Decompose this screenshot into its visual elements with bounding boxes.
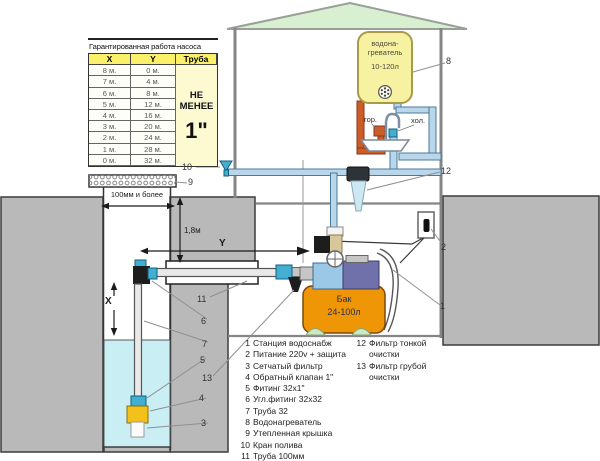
- table-cell: 0 м.: [89, 155, 131, 166]
- tank-label: Бак 24-100л: [303, 293, 385, 319]
- insulated-cover-pattern: [89, 175, 176, 187]
- table-cell: 4 м.: [131, 76, 176, 87]
- pump-motor: [343, 261, 379, 289]
- callout-3: 3: [201, 419, 206, 428]
- legend-item-wrap: очистки: [350, 372, 426, 383]
- pump-inlet: [300, 267, 314, 280]
- water-supply-diagram: Гарантированная работа насоса X Y Труба …: [0, 0, 600, 461]
- legend-item: 5Фитинг 32х1": [234, 383, 346, 394]
- outlet-cable: [400, 238, 424, 263]
- table-cell: 1 м.: [89, 144, 131, 155]
- table-grid: X Y Труба НЕ МЕНЕЕ 1" 8 м. 0 м. 7 м. 4 м…: [88, 53, 218, 167]
- table-cell: 32 м.: [131, 155, 176, 166]
- wall-entry-fitting: [276, 265, 292, 279]
- x-dimension-label: X: [105, 297, 112, 307]
- table-cell: 24 м.: [131, 132, 176, 143]
- house-roof: [227, 3, 467, 29]
- callout-4: 4: [199, 394, 204, 403]
- soil-middle-lower: [170, 283, 228, 452]
- col-header-pipe: Труба: [176, 54, 217, 65]
- dimension-well-width: [101, 203, 175, 209]
- mesh-filter: [131, 422, 144, 437]
- table-cell: 2 м.: [89, 132, 131, 143]
- cold-label-leader: [398, 125, 414, 131]
- table-cell: 0 м.: [131, 65, 176, 76]
- callout-8: 8: [446, 57, 451, 66]
- legend-item: 12Фильтр тонкой: [350, 338, 426, 349]
- legend-item-wrap: очистки: [350, 349, 426, 360]
- well-drop-pipe: [135, 284, 142, 397]
- legend-item: 3Сетчатый фильтр: [234, 361, 346, 372]
- pressure-switch-cable: [332, 238, 423, 244]
- hot-water-label: гор.: [364, 116, 377, 124]
- table-cell: 6 м.: [89, 88, 131, 99]
- pressure-switch: [314, 236, 330, 253]
- legend-item: 2Питание 220v + защита: [234, 349, 346, 360]
- dimension-x: [111, 282, 117, 336]
- soil-left: [1, 197, 103, 452]
- soil-middle-upper: [170, 197, 255, 262]
- pump-body: [313, 263, 344, 289]
- table-title: Гарантированная работа насоса: [88, 38, 218, 53]
- power-outlet: [418, 212, 434, 238]
- callout-6: 6: [201, 317, 206, 326]
- heating-element-icon: [377, 84, 393, 100]
- col-header-x: X: [89, 54, 131, 65]
- pump-performance-table: Гарантированная работа насоса X Y Труба …: [88, 38, 218, 167]
- pipe-size-value: 1": [185, 120, 208, 142]
- legend-item: 4Обратный клапан 1": [234, 372, 346, 383]
- table-cell: 4 м.: [89, 110, 131, 121]
- callout-7: 7: [202, 340, 207, 349]
- legend-item: 9Утепленная крышка: [234, 428, 346, 439]
- legend-item: 1Станция водоснабж: [234, 338, 346, 349]
- table-cell: 20 м.: [131, 121, 176, 132]
- table-cell: 7 м.: [89, 76, 131, 87]
- callout-12: 12: [441, 167, 451, 176]
- callout-9: 9: [188, 178, 193, 187]
- callout-1: 1: [440, 302, 445, 311]
- table-cell: 16 м.: [131, 110, 176, 121]
- pipe-size-cell: НЕ МЕНЕЕ 1": [176, 65, 217, 166]
- legend-item: 6Угл.фитинг 32х32: [234, 394, 346, 405]
- depth-dimension-label: 1,8м: [184, 227, 201, 235]
- well-width-dimension-label: 100мм и более: [104, 191, 170, 199]
- check-valve: [127, 406, 148, 423]
- table-cell: 8 м.: [89, 65, 131, 76]
- table-cell: 8 м.: [131, 88, 176, 99]
- col-header-y: Y: [131, 54, 176, 65]
- soil-right: [443, 196, 599, 345]
- callout-5: 5: [200, 356, 205, 365]
- callout-11: 11: [197, 295, 206, 304]
- water-heater: водона- греватель 10-120л: [357, 31, 413, 104]
- cold-tap: [389, 129, 397, 137]
- table-cell: 12 м.: [131, 99, 176, 110]
- callout-2: 2: [441, 243, 446, 252]
- y-dimension-label: Y: [219, 239, 226, 249]
- elbow-fitting: [133, 260, 157, 284]
- well-bottom-soil: [104, 447, 170, 452]
- hot-tap: [374, 126, 385, 136]
- callout-10: 10: [182, 163, 192, 172]
- sink: [361, 140, 409, 151]
- heater-capacity: 10-120л: [359, 62, 411, 71]
- motor-cap: [346, 256, 368, 263]
- table-cell: 5 м.: [89, 99, 131, 110]
- legend-item: 8Водонагреватель: [234, 417, 346, 428]
- cold-water-pipes: [390, 100, 441, 170]
- cold-water-label: хол.: [411, 117, 425, 125]
- legend-right-column: 12Фильтр тонкой очистки 13Фильтр грубой …: [350, 338, 426, 383]
- heater-label-line2: греватель: [359, 48, 411, 57]
- legend-left-column: 1Станция водоснабж 2Питание 220v + защит…: [234, 338, 346, 461]
- legend-item: 7Труба 32: [234, 406, 346, 417]
- legend-item: 11Труба 100мм: [234, 451, 346, 461]
- heater-label-line1: водона-: [359, 39, 411, 48]
- bottom-fitting: [131, 396, 146, 407]
- callout-13: 13: [202, 374, 212, 383]
- legend-item: 10Кран полива: [234, 440, 346, 451]
- legend-item: 13Фильтр грубой: [350, 361, 426, 372]
- table-cell: 3 м.: [89, 121, 131, 132]
- riser-pipe: [331, 173, 338, 229]
- table-cell: 28 м.: [131, 144, 176, 155]
